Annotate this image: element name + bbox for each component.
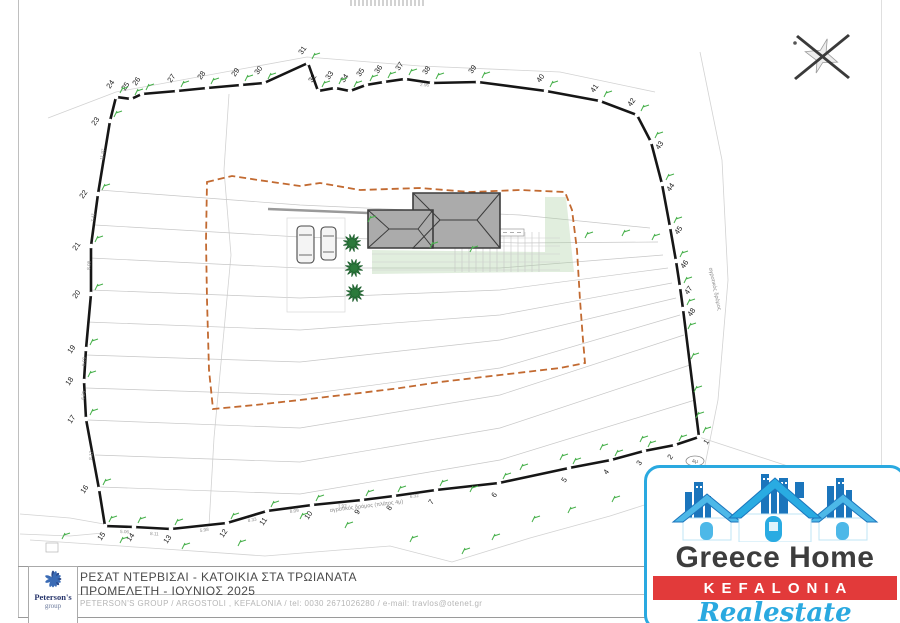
svg-text:47: 47 xyxy=(682,284,694,296)
svg-text:23: 23 xyxy=(89,115,101,127)
svg-text:18: 18 xyxy=(63,375,75,387)
svg-text:35: 35 xyxy=(354,66,366,78)
svg-text:17: 17 xyxy=(65,413,77,425)
svg-text:5.98: 5.98 xyxy=(199,527,209,533)
svg-text:48: 48 xyxy=(685,306,697,318)
north-arrow-icon xyxy=(793,34,850,80)
svg-text:29: 29 xyxy=(229,66,241,78)
svg-text:44: 44 xyxy=(664,181,676,193)
sheet-border-left xyxy=(18,0,19,617)
svg-text:8.11: 8.11 xyxy=(150,531,159,536)
project-phase: ΠΡΟΜΕΛΕΤΗ - ΙΟΥΝΙΟΣ 2025 xyxy=(80,584,255,598)
svg-text:41: 41 xyxy=(588,82,600,94)
svg-text:6.32: 6.32 xyxy=(410,493,420,499)
svg-text:45: 45 xyxy=(672,224,684,236)
svg-text:5.09: 5.09 xyxy=(81,356,87,366)
svg-text:37: 37 xyxy=(393,60,405,72)
svg-text:12: 12 xyxy=(217,527,229,539)
logo-line2: KEFALONIA xyxy=(697,580,854,597)
svg-text:33: 33 xyxy=(323,69,335,81)
svg-text:8.33: 8.33 xyxy=(247,516,257,523)
svg-text:39: 39 xyxy=(466,63,478,75)
svg-text:8.17: 8.17 xyxy=(88,450,94,460)
svg-text:28: 28 xyxy=(195,69,207,81)
svg-text:19: 19 xyxy=(65,343,77,355)
svg-text:10: 10 xyxy=(302,509,314,521)
svg-text:13: 13 xyxy=(161,533,173,545)
svg-text:8.08: 8.08 xyxy=(86,260,92,270)
svg-text:36: 36 xyxy=(372,63,384,75)
petersons-sub: group xyxy=(29,602,77,610)
svg-text:6: 6 xyxy=(489,491,499,500)
logo-line3: Realestate xyxy=(647,599,900,623)
petersons-logo: Peterson's group xyxy=(28,566,78,623)
svg-text:30: 30 xyxy=(252,64,264,76)
svg-text:7: 7 xyxy=(426,498,436,507)
contact-line: PETERSON'S GROUP / ARGOSTOLI , KEFALONIA… xyxy=(80,599,482,608)
houses-icon xyxy=(657,470,893,542)
svg-text:7.41: 7.41 xyxy=(90,212,96,222)
logo-line1: Greece Home xyxy=(647,543,900,573)
svg-text:1: 1 xyxy=(701,438,711,447)
svg-text:20: 20 xyxy=(70,288,82,300)
svg-text:31: 31 xyxy=(296,44,308,56)
svg-text:42: 42 xyxy=(625,96,637,108)
svg-text:11: 11 xyxy=(257,516,269,528)
svg-text:5.06: 5.06 xyxy=(120,529,130,534)
project-title: ΡΕΣΑΤ ΝΤΕΡΒΙΣΑΙ - ΚΑΤΟΙΚΙΑ ΣΤΑ ΤΡΩΙΑΝΑΤΑ xyxy=(80,570,357,584)
svg-text:4: 4 xyxy=(601,468,611,477)
svg-text:8.09: 8.09 xyxy=(289,508,299,514)
greece-home-logo: Greece Home KEFALONIA Realestate xyxy=(644,465,900,623)
svg-text:26: 26 xyxy=(130,75,142,87)
petersons-name: Peterson's xyxy=(29,593,77,602)
sheet-border-right xyxy=(881,0,882,470)
svg-text:15: 15 xyxy=(95,530,107,542)
road-label-right: αγροτικός δρόμος xyxy=(707,267,723,311)
svg-text:16: 16 xyxy=(78,483,90,495)
svg-text:24: 24 xyxy=(104,78,116,90)
pinwheel-icon xyxy=(43,570,63,588)
svg-text:22: 22 xyxy=(77,188,89,200)
svg-text:43: 43 xyxy=(653,139,665,151)
cropped-top-annotation xyxy=(350,0,426,6)
site-plan-sheet: 2324252627282930313233343536373839404142… xyxy=(0,0,900,623)
svg-text:21: 21 xyxy=(70,240,82,252)
svg-text:40: 40 xyxy=(534,72,546,84)
svg-text:2: 2 xyxy=(665,453,675,462)
svg-text:3: 3 xyxy=(634,459,644,468)
svg-text:32: 32 xyxy=(306,72,318,84)
svg-text:46: 46 xyxy=(678,258,690,270)
svg-text:2.96: 2.96 xyxy=(420,82,430,88)
svg-text:5: 5 xyxy=(559,476,569,485)
logo-red-band: KEFALONIA xyxy=(653,576,897,600)
